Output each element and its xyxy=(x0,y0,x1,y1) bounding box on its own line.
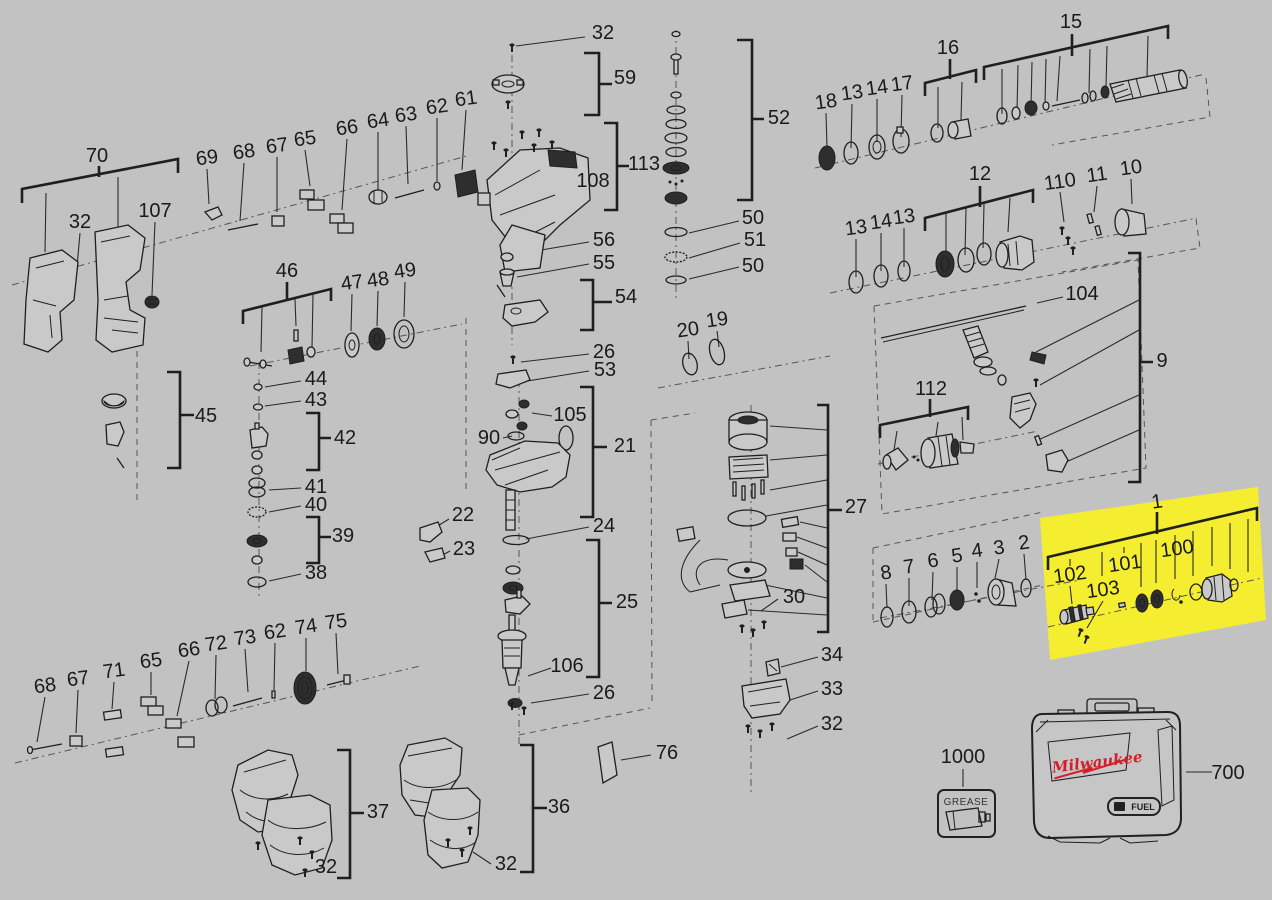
axis-lines xyxy=(12,30,1262,795)
part-housing-halves-70 xyxy=(24,225,159,352)
parts-46-group xyxy=(244,320,414,587)
grease-kit: GREASE xyxy=(938,790,995,837)
parts-45-group xyxy=(102,394,126,468)
badge-text: FUEL xyxy=(1131,802,1155,812)
parts-9-group xyxy=(881,306,1068,472)
part-gear-housing-21 xyxy=(420,426,573,562)
parts-37-assembly xyxy=(232,750,332,877)
part-motor-assembly xyxy=(478,128,590,272)
parts-112-chuck xyxy=(883,434,974,470)
parts-52-column xyxy=(663,32,727,377)
grease-label: GREASE xyxy=(944,797,989,808)
exploded-parts-diagram: GREASE Milwaukee FUEL 703210769686765666… xyxy=(0,0,1272,900)
parts-15-spindle-row xyxy=(819,69,1189,170)
diagram-drawing: GREASE Milwaukee FUEL xyxy=(0,0,1272,900)
parts-bottom-row xyxy=(28,672,351,757)
parts-12-row xyxy=(849,209,1146,293)
parts-36-assembly xyxy=(400,738,480,868)
parts-2-8-row xyxy=(881,579,1031,627)
carry-case: Milwaukee FUEL xyxy=(1032,699,1181,843)
parts-27-column xyxy=(677,412,803,738)
